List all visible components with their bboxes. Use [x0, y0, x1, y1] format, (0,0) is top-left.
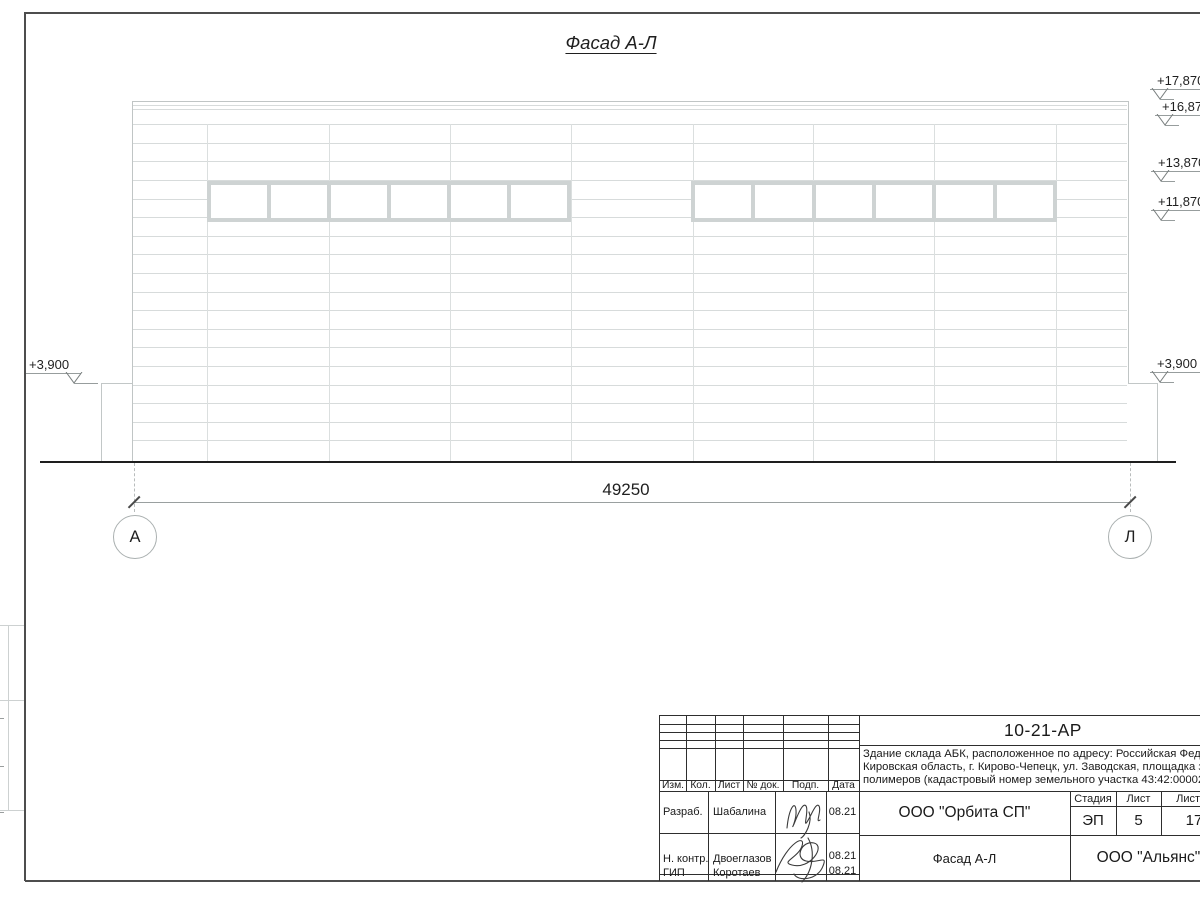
- elevation-mark: +13,870: [1151, 155, 1200, 172]
- project-description: Здание склада АБК, расположенное по адре…: [863, 748, 1200, 787]
- row-name: Шабалина: [713, 791, 775, 833]
- col-ndok: № док.: [743, 780, 783, 791]
- window-pane: [271, 185, 327, 218]
- axis-label-l: Л: [1125, 528, 1136, 546]
- col-kol: Кол.: [686, 780, 715, 791]
- col-list: Лист: [715, 780, 743, 791]
- ground-line: [40, 461, 1176, 464]
- description-line: Здание склада АБК, расположенное по адре…: [863, 748, 1200, 761]
- side-stamp-text-fragment: [0, 766, 4, 767]
- dimension-line: [134, 502, 1130, 503]
- annex-left: [101, 383, 132, 461]
- facade-panel-joint: [693, 124, 694, 461]
- axis-bubble-a: А: [113, 515, 157, 559]
- facade-siding-line: [133, 440, 1127, 441]
- window-pane: [876, 185, 932, 218]
- window-pane: [331, 185, 387, 218]
- window-band-left: [207, 181, 571, 222]
- facade-siding-line: [133, 385, 1127, 386]
- facade-siding-line: [133, 366, 1127, 367]
- row-date: 08.21: [826, 791, 859, 833]
- axis-label-a: А: [129, 528, 140, 546]
- side-stamp-text-fragment: [0, 718, 4, 719]
- elevation-mark: +3,900: [26, 357, 81, 374]
- elevation-mark: +11,870: [1151, 194, 1200, 211]
- row-name: Двоеглазов: [713, 852, 775, 866]
- side-stamp-line: [0, 625, 24, 626]
- facade-panel-joint: [1056, 124, 1057, 461]
- drawing-sheet: Фасад А-Л 49250 А Л +17,870 +16,870 +13,…: [0, 0, 1200, 900]
- frame-left: [24, 12, 26, 881]
- side-stamp-line: [0, 700, 24, 701]
- facade-siding-line: [133, 273, 1127, 274]
- contractor-cell: ООО "Альянс": [1070, 835, 1200, 881]
- side-stamp-text-fragment: [0, 812, 4, 813]
- sheets-label: Листов: [1161, 791, 1200, 806]
- title-block: Изм. Кол. Лист № док. Подп. Дата Разраб.…: [659, 715, 1200, 881]
- facade-siding-line: [133, 292, 1127, 293]
- facade-siding-line: [133, 143, 1127, 144]
- elevation-tip-line: [74, 383, 98, 384]
- facade-siding-line: [133, 347, 1127, 348]
- frame-top: [25, 12, 1200, 14]
- company-cell: ООО "Орбита СП": [859, 791, 1070, 835]
- facade-panel-joint: [450, 124, 451, 461]
- facade-panel-joint: [329, 124, 330, 461]
- dimension-value: 49250: [556, 480, 696, 500]
- facade-siding-line: [133, 310, 1127, 311]
- sheet-value: 5: [1116, 806, 1161, 835]
- axis-bubble-l: Л: [1108, 515, 1152, 559]
- sheet-title: Фасад А-Л: [500, 32, 722, 54]
- col-data: Дата: [828, 780, 859, 791]
- elevation-tip-line: [1160, 382, 1174, 383]
- description-line: Кировская область, г. Кирово-Чепецк, ул.…: [863, 761, 1200, 774]
- window-pane: [451, 185, 507, 218]
- window-pane: [816, 185, 872, 218]
- window-band-right: [691, 181, 1057, 222]
- facade-siding-line: [133, 124, 1127, 125]
- col-podp: Подп.: [783, 780, 828, 791]
- elevation-mark: +16,870: [1155, 99, 1200, 116]
- window-pane: [755, 185, 811, 218]
- facade-siding-line: [133, 403, 1127, 404]
- sheets-value: 17: [1161, 806, 1200, 835]
- row-role: Разраб.: [663, 791, 708, 833]
- axis-line-l: [1130, 463, 1131, 512]
- facade-parapet-line: [133, 109, 1127, 110]
- description-line: полимеров (кадастровый номер земельного …: [863, 774, 1200, 787]
- window-pane: [391, 185, 447, 218]
- elevation-mark: +17,870: [1150, 73, 1200, 90]
- row-name: Коротаев: [713, 866, 775, 880]
- elevation-tip-line: [1161, 181, 1175, 182]
- facade-panel-joint: [207, 124, 208, 461]
- facade-siding-line: [133, 254, 1127, 255]
- facade-parapet-line: [133, 105, 1127, 106]
- facade-panel-joint: [813, 124, 814, 461]
- facade-siding-line: [133, 236, 1127, 237]
- side-stamp-line: [0, 810, 24, 811]
- facade-siding-line: [133, 161, 1127, 162]
- col-izm: Изм.: [660, 780, 686, 791]
- row-role: Н. контр.: [663, 852, 713, 866]
- elevation-mark: +3,900: [1150, 356, 1200, 373]
- facade-siding-line: [133, 422, 1127, 423]
- side-stamp-line: [8, 625, 9, 811]
- window-pane: [695, 185, 751, 218]
- window-pane: [511, 185, 567, 218]
- signature-gip-nkontr: [772, 832, 834, 884]
- window-pane: [936, 185, 992, 218]
- facade-panel-joint: [934, 124, 935, 461]
- facade-siding-line: [133, 329, 1127, 330]
- elevation-tip-line: [1165, 125, 1179, 126]
- window-pane: [997, 185, 1053, 218]
- drawing-title-cell: Фасад А-Л: [859, 835, 1070, 881]
- facade-outline: [132, 101, 1129, 463]
- axis-line-a: [134, 463, 135, 512]
- elevation-tip-line: [1161, 220, 1175, 221]
- facade-panel-joint: [571, 124, 572, 461]
- stage-value: ЭП: [1070, 806, 1116, 835]
- sheet-label: Лист: [1116, 791, 1161, 806]
- stage-label: Стадия: [1070, 791, 1116, 806]
- doc-number: 10-21-АР: [859, 716, 1200, 745]
- row-role: ГИП: [663, 866, 713, 880]
- window-pane: [211, 185, 267, 218]
- annex-right: [1128, 383, 1158, 461]
